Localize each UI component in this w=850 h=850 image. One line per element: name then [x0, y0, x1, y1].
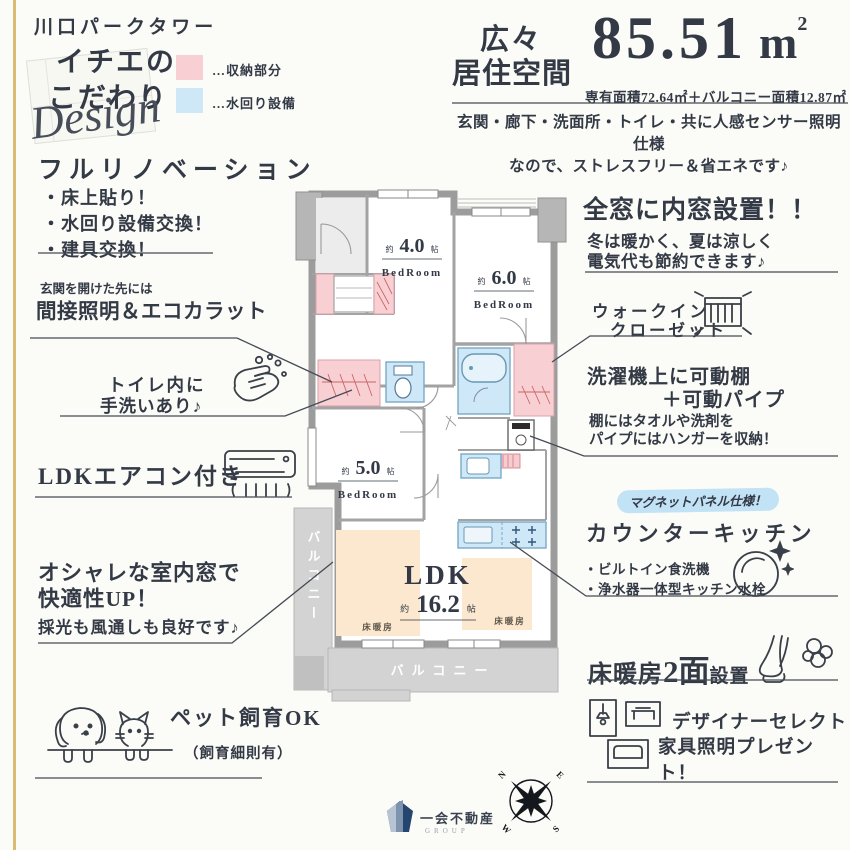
floor-heating-title: 床暖房2面設置: [588, 646, 750, 691]
sparkling-dish-icon: [728, 538, 794, 600]
flyer-canvas: 川口パークタワー イチエの こだわり Design …収納部分 …水回り設備 広…: [0, 0, 850, 850]
pet-sub: （飼育細則有）: [184, 742, 293, 763]
dog-and-cat-icon: [46, 700, 174, 780]
renovation-title: フルリノベーション: [38, 150, 317, 186]
bedroom5-type: BedRoom: [338, 489, 398, 501]
magnet-panel-badge: マグネットパネル仕様！: [617, 488, 779, 514]
sensor-note-line2: なので、ストレスフリー＆省エネです♪: [450, 156, 848, 178]
legend-storage-swatch: [176, 55, 203, 80]
indirect-light-title: 間接照明＆エコカラット: [36, 294, 267, 324]
area-figure: 85.51m2: [592, 4, 807, 73]
floor-heating-label: 床暖房: [362, 622, 394, 632]
inner-window-title: 全窓に内窓設置！！: [583, 190, 817, 226]
compass-w: W: [499, 822, 512, 835]
aircon-title: LDKエアコン付き: [38, 457, 244, 491]
floor-heating-part3: 設置: [710, 666, 750, 687]
company-group: GROUP: [425, 827, 469, 835]
warm-feet-icon: [752, 634, 838, 686]
balcony-left-label: バルコニー: [306, 530, 321, 625]
kitchen-item: ・ビルトイン食洗機: [584, 558, 710, 578]
toilet-hand-line2: 手洗いあり♪: [100, 393, 202, 418]
vent-grill: [458, 199, 536, 207]
balcony-corner-block: [294, 656, 324, 690]
sensor-note-line1: 玄関・廊下・洗面所・トイレ・共に人感センサー照明仕様: [450, 112, 848, 156]
compass-e: E: [554, 769, 565, 780]
area-breakdown: 専有面積72.64㎡＋バルコニー面積12.87㎡: [585, 86, 846, 106]
renovation-item: ・建具交換！: [42, 236, 156, 262]
bedroom4-type: BedRoom: [382, 267, 442, 279]
bathtub: [462, 354, 506, 382]
gold-accent-line: [13, 0, 16, 850]
floor-heating-label: 床暖房: [494, 616, 526, 626]
compass-n: N: [496, 769, 508, 781]
air-conditioner-icon: [222, 448, 298, 500]
floor-heating-part2: 2面: [663, 654, 710, 689]
floor-plan: バルコニー バルコニー: [288, 178, 588, 713]
laundry-title2: ＋可動パイプ: [662, 383, 785, 412]
laundry-sub2: パイプにはハンガーを収納！: [589, 428, 778, 449]
legend-water-label: …水回り設備: [212, 93, 296, 112]
legend-storage-label: …収納部分: [212, 60, 282, 79]
company-logo-icon: [386, 800, 414, 834]
designer-line1: デザイナーセレクト: [672, 708, 847, 734]
designer-line2: 家具照明プレゼント！: [658, 733, 850, 785]
ldk-title: LDK: [404, 560, 472, 590]
interior-window-line2: 快適性UP！: [38, 582, 159, 613]
interior-window-sub: 採光も風通しも良好です♪: [38, 614, 240, 638]
closet-icon: [693, 290, 753, 336]
catch-copy-line2: 居住空間: [452, 50, 572, 92]
inner-window-sub2: 電気代も節約できます♪: [587, 248, 766, 272]
compass-icon: N E S W: [492, 762, 570, 840]
renovation-item: ・水回り設備交換！: [42, 210, 213, 236]
sensor-note: 玄関・廊下・洗面所・トイレ・共に人感センサー照明仕様 なので、ストレスフリー＆省…: [450, 112, 848, 178]
renovation-item: ・床上貼り！: [42, 184, 156, 210]
floor-heating-part1: 床暖房: [588, 662, 663, 688]
area-unit: m2: [759, 17, 807, 68]
compass-s: S: [551, 824, 562, 835]
corner-block: [538, 198, 566, 242]
bedroom6-type: BedRoom: [474, 299, 534, 311]
brand-line1: イチエの: [56, 40, 176, 80]
legend-water-swatch: [176, 88, 203, 113]
balcony-step: [332, 690, 410, 701]
hand-wash-icon: [225, 352, 289, 412]
balcony-bottom-label: バルコニー: [391, 663, 496, 678]
company-name: 一会不動産: [420, 808, 495, 827]
area-value: 85.51: [592, 5, 747, 71]
building-name: 川口パークタワー: [34, 12, 217, 39]
